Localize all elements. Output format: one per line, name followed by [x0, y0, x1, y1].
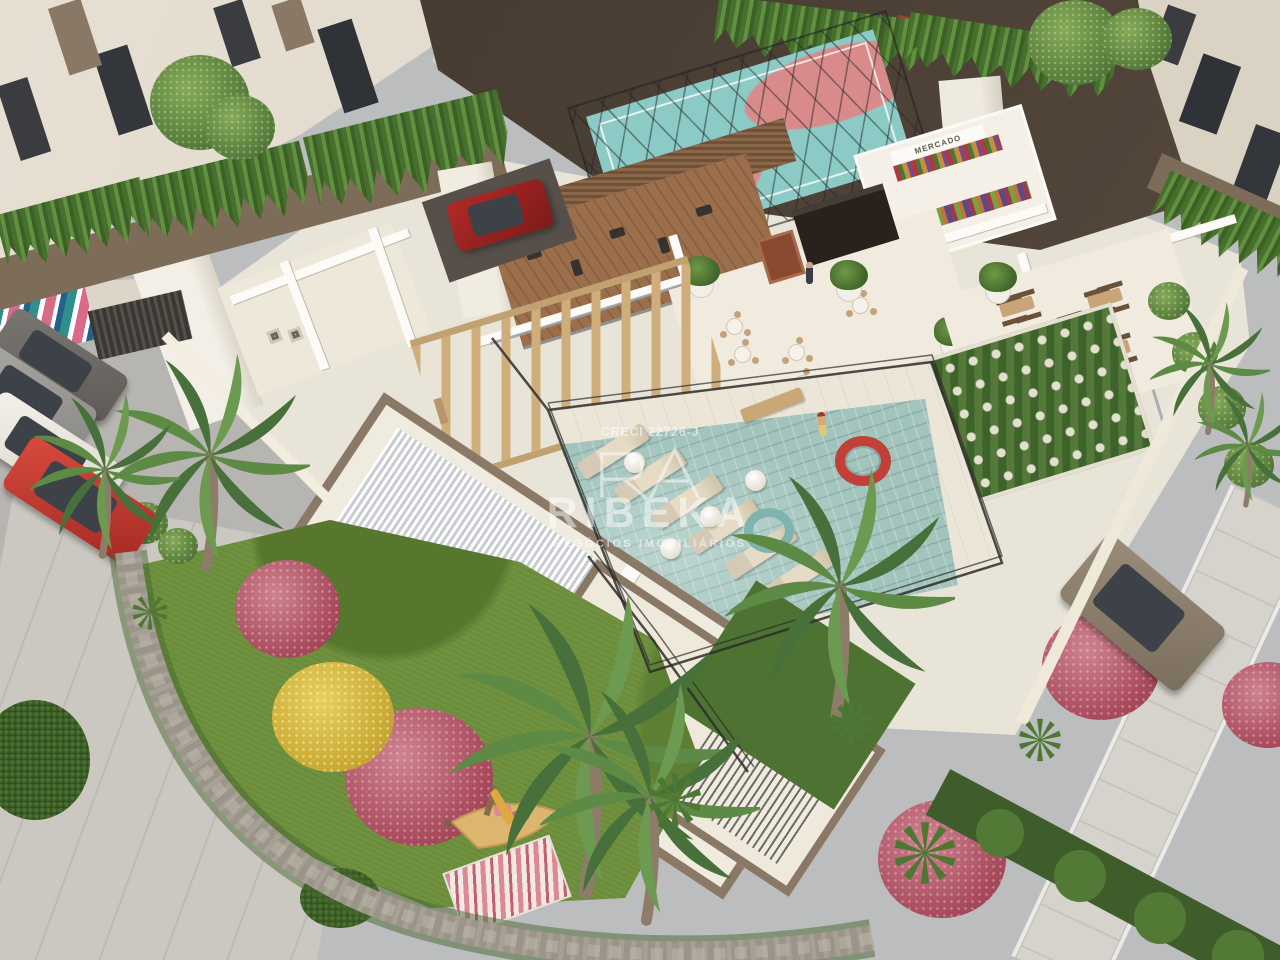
sidewalk-shrub	[1148, 282, 1190, 320]
watermark-logo-icon	[584, 441, 716, 501]
appliance	[287, 326, 304, 343]
sidewalk-shrub	[1198, 386, 1246, 430]
condo-model-scene: MERCADO	[0, 0, 1280, 960]
person-figurine	[806, 262, 813, 284]
orange-swim-ring	[835, 436, 891, 486]
watermark-tagline: NEGÓCIOS IMOBILIÁRIOS	[545, 538, 755, 550]
balcony-tree	[205, 95, 275, 160]
rooftop-tree	[1102, 8, 1172, 70]
pink-bush	[235, 560, 340, 658]
gym-equipment	[570, 259, 583, 277]
planter-pot	[836, 276, 862, 302]
fern-cluster	[1019, 719, 1061, 761]
cafe-table	[734, 346, 751, 363]
cafe-table	[788, 344, 805, 361]
sidewalk-shrub	[1224, 442, 1274, 488]
gym-equipment	[609, 226, 626, 239]
planter-pot	[985, 278, 1011, 304]
pink-bush-bottom	[878, 800, 1006, 918]
sidewalk-shrub	[1172, 332, 1218, 374]
watermark-creci: CRECI 22726-J	[545, 425, 755, 439]
wall-planting	[300, 868, 380, 928]
green-shrub	[158, 528, 198, 564]
hedge-clump	[1212, 930, 1264, 960]
car-glass	[466, 193, 525, 238]
cafe-table	[726, 318, 743, 335]
watermark: CRECI 22726-J RIBEKA NEGÓCIOS IMOBILIÁRI…	[545, 425, 755, 550]
appliance	[266, 328, 283, 345]
yellow-bush	[272, 662, 394, 772]
gym-equipment	[695, 204, 713, 217]
